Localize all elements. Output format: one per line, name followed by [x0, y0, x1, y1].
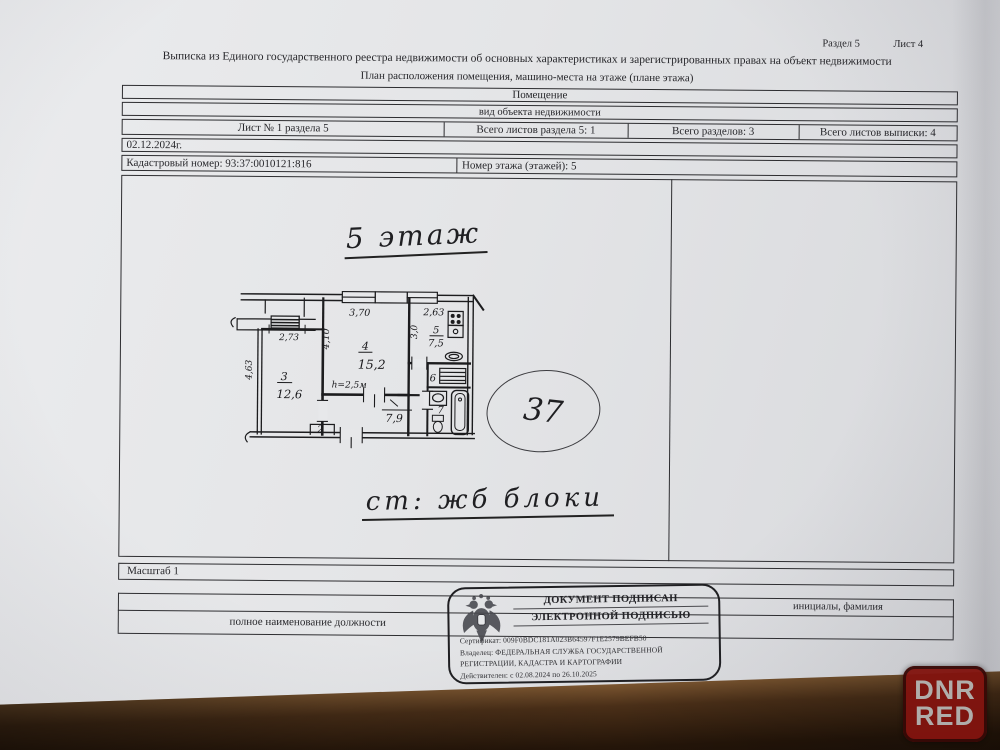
stamp-details: Сертификат: 009F0BDC181A023B64597F1E2579… [460, 632, 712, 682]
digital-signature-stamp: ДОКУМЕНТ ПОДПИСАН ЭЛЕКТРОННОЙ ПОДПИСЬЮ С… [447, 583, 721, 684]
name-caption: инициалы, фамилия [763, 601, 913, 613]
signature-border-right [953, 599, 954, 639]
dnr-red-watermark: DNR RED [903, 666, 987, 742]
room3-area: 12,6 [277, 387, 303, 401]
scale-row: Масштаб 1 [118, 563, 954, 587]
kitchen-sink-icon [445, 352, 462, 361]
floor-plan-drawing: 2,73 3,70 2,63 4,10 4,63 3,0 3 12,6 4 15… [224, 283, 485, 455]
balcony-outline [231, 298, 315, 331]
cadastral-row: Кадастровый номер: 93:37:0010121:816 Ном… [121, 155, 957, 178]
toilet-icon [432, 415, 443, 432]
dim-2-63: 2,63 [422, 307, 444, 318]
position-caption: полное наименование должности [183, 615, 433, 629]
closet-shelf-icon [440, 368, 466, 383]
corner-sheet-label: Лист 4 [893, 39, 923, 50]
walls-material-note: ст: жб блоки [361, 482, 614, 521]
stamp-header: ДОКУМЕНТ ПОДПИСАН ЭЛЕКТРОННОЙ ПОДПИСЬЮ [513, 593, 708, 627]
room6-number: 6 [430, 373, 437, 384]
room3-number: 3 [281, 370, 288, 383]
window-icons [342, 292, 437, 304]
apartment-number: 37 [522, 391, 565, 431]
room5-number: 5 [433, 325, 439, 336]
stove-icon [448, 311, 463, 337]
stamp-line1: ДОКУМЕНТ ПОДПИСАН [513, 593, 708, 610]
bathtub-icon [451, 390, 468, 434]
document-title: Выписка из Единого государственного реес… [127, 50, 927, 68]
sheet-cell: Лист № 1 раздела 5 [123, 120, 444, 137]
room5-area: 7,5 [428, 338, 444, 349]
corridor-area: 7,9 [385, 412, 403, 425]
stamp-validity: Действителен: с 02.08.2024 по 26.10.2025 [460, 666, 711, 681]
label-rules [277, 335, 443, 411]
room4-height: h=2,5м [332, 380, 367, 390]
dim-4-10: 4,10 [321, 328, 332, 350]
watermark-line2: RED [915, 704, 975, 730]
bath-sink-icon [429, 391, 446, 405]
corner-section-label: Раздел 5 [822, 38, 860, 49]
photo-of-egrn-extract: Раздел 5 Лист 4 Выписка из Единого госуд… [0, 0, 1000, 750]
room7-number: 7 [437, 405, 444, 416]
room2-number: 2 [316, 424, 323, 435]
sheets-extract-cell: Всего листов выписки: 4 [798, 125, 957, 140]
floor-title-handwritten: 5 этаж [343, 216, 488, 259]
sheets-section-cell: Всего листов раздела 5: 1 [444, 122, 628, 137]
dim-3-0: 3,0 [410, 325, 420, 340]
dim-4-63: 4,63 [245, 359, 255, 380]
document-subtitle: План расположения помещения, машино-мест… [227, 69, 827, 86]
dim-2-73: 2,73 [278, 333, 299, 343]
cadastral-number-cell: Кадастровый номер: 93:37:0010121:816 [122, 156, 456, 173]
dim-3-70: 3,70 [349, 308, 370, 319]
floor-number-cell: Номер этажа (этажей): 5 [456, 158, 956, 176]
room4-number: 4 [361, 340, 369, 353]
room4-area: 15,2 [358, 357, 386, 372]
signature-border-left [118, 593, 119, 633]
sections-cell: Всего разделов: 3 [627, 124, 798, 139]
document-content: Раздел 5 Лист 4 Выписка из Единого госуд… [21, 36, 1000, 750]
stamp-line2: ЭЛЕКТРОННОЙ ПОДПИСЬЮ [513, 610, 708, 627]
